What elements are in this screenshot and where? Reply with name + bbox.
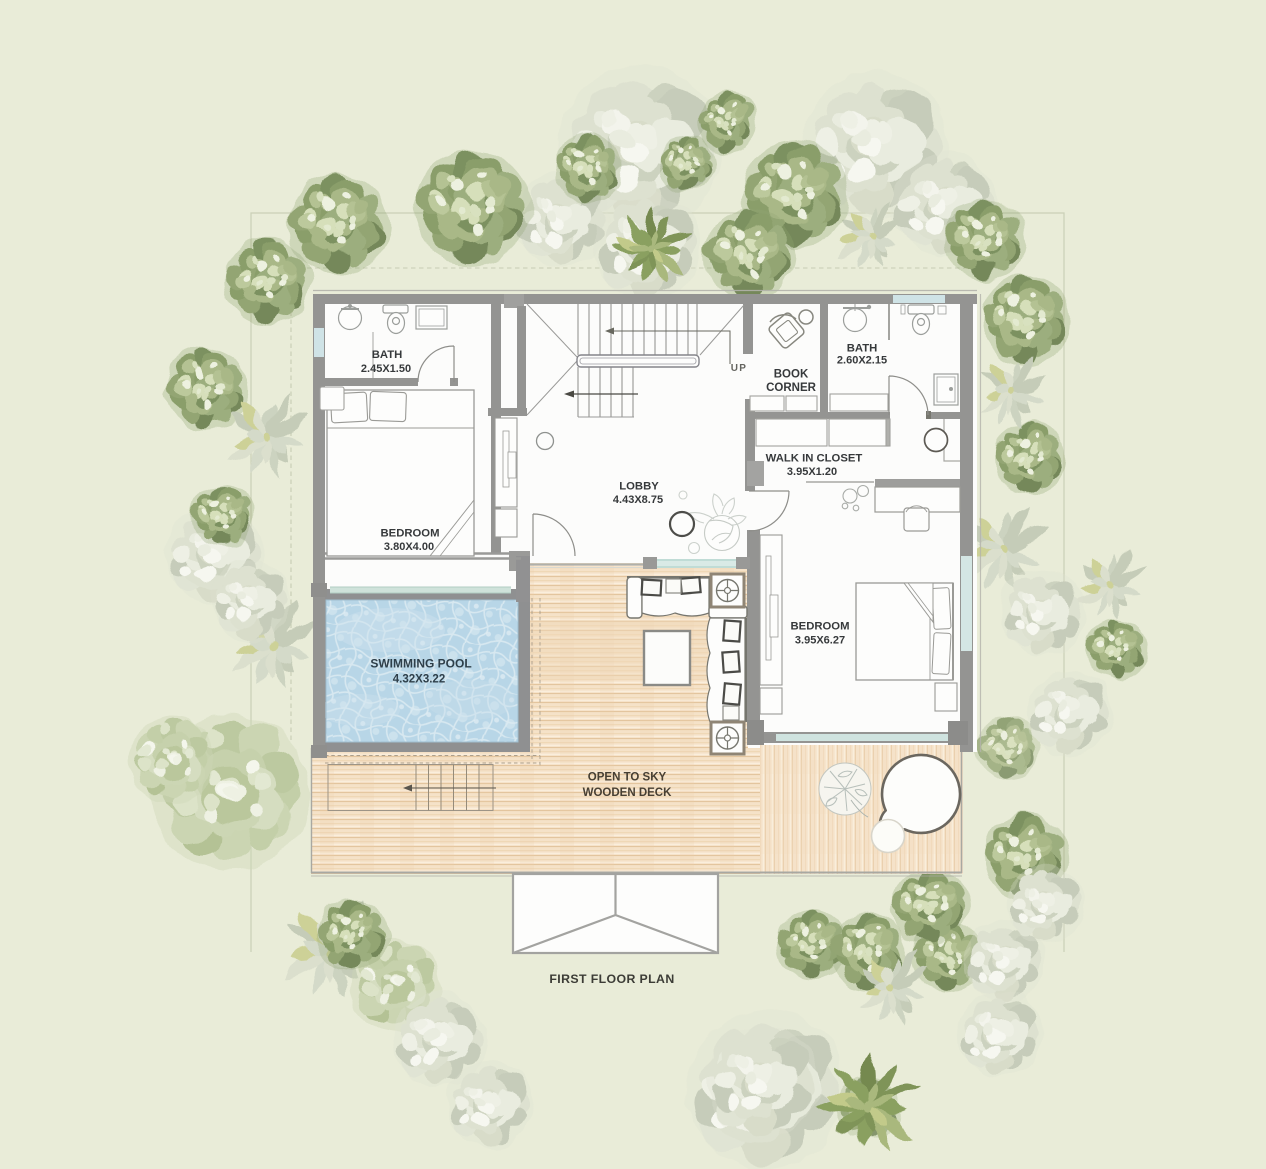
- svg-text:SWIMMING POOL: SWIMMING POOL: [370, 657, 471, 671]
- svg-text:BOOK: BOOK: [774, 369, 809, 381]
- svg-text:CORNER: CORNER: [766, 382, 817, 394]
- svg-text:3.95X6.27: 3.95X6.27: [795, 635, 845, 647]
- svg-text:2.45X1.50: 2.45X1.50: [361, 363, 411, 375]
- svg-text:WOODEN DECK: WOODEN DECK: [583, 787, 673, 799]
- svg-text:BATH: BATH: [372, 349, 403, 361]
- svg-text:FIRST FLOOR PLAN: FIRST FLOOR PLAN: [549, 972, 674, 986]
- svg-text:WALK IN CLOSET: WALK IN CLOSET: [766, 453, 863, 465]
- svg-text:4.32X3.22: 4.32X3.22: [393, 674, 445, 686]
- svg-text:UP: UP: [731, 363, 748, 374]
- svg-text:4.43X8.75: 4.43X8.75: [613, 494, 663, 506]
- svg-text:3.80X4.00: 3.80X4.00: [384, 541, 434, 553]
- svg-text:3.95X1.20: 3.95X1.20: [787, 466, 837, 478]
- svg-text:LOBBY: LOBBY: [619, 481, 659, 493]
- svg-text:OPEN TO SKY: OPEN TO SKY: [588, 772, 667, 784]
- svg-text:2.60X2.15: 2.60X2.15: [837, 355, 887, 367]
- svg-text:BEDROOM: BEDROOM: [791, 621, 850, 633]
- svg-text:BEDROOM: BEDROOM: [381, 528, 440, 540]
- svg-text:BATH: BATH: [847, 343, 878, 355]
